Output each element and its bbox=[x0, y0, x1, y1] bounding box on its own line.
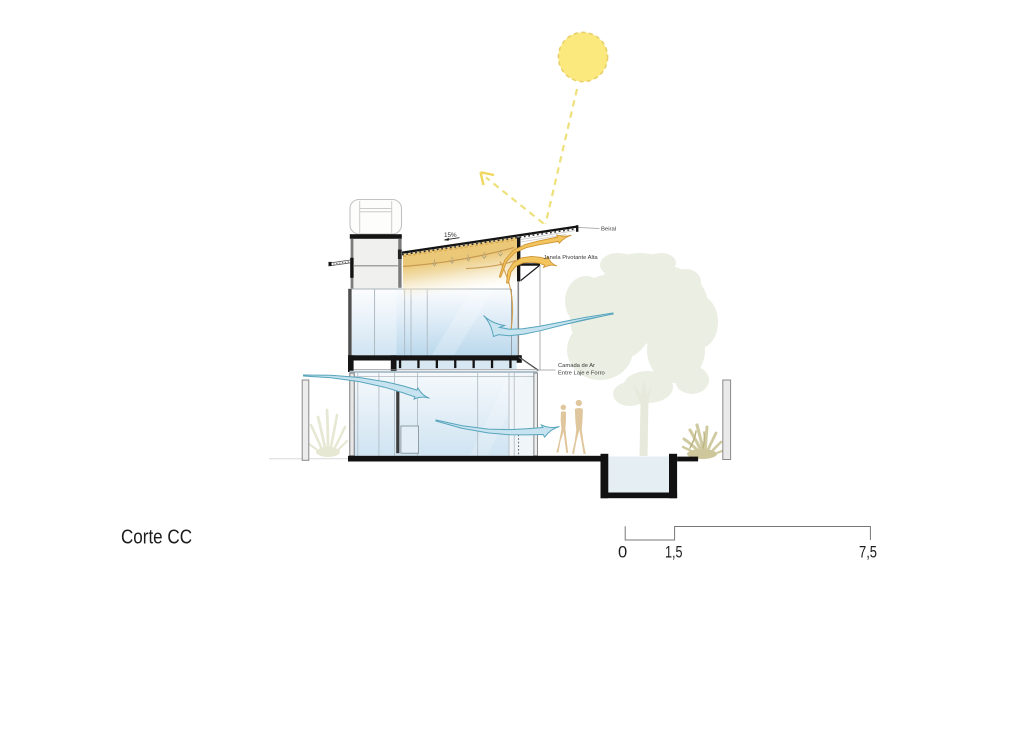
svg-text:Corte CC: Corte CC bbox=[121, 526, 192, 549]
svg-text:Beiral: Beiral bbox=[601, 227, 616, 233]
svg-text:0: 0 bbox=[618, 544, 627, 562]
svg-text:7,5: 7,5 bbox=[859, 544, 877, 562]
svg-text:Camada de Ar: Camada de Ar bbox=[558, 363, 595, 369]
svg-text:Entre Laje e Forro: Entre Laje e Forro bbox=[558, 370, 605, 376]
svg-text:1,5: 1,5 bbox=[665, 544, 683, 562]
svg-text:Janela Pivotante Alta: Janela Pivotante Alta bbox=[544, 255, 599, 261]
svg-text:15%: 15% bbox=[444, 232, 457, 239]
